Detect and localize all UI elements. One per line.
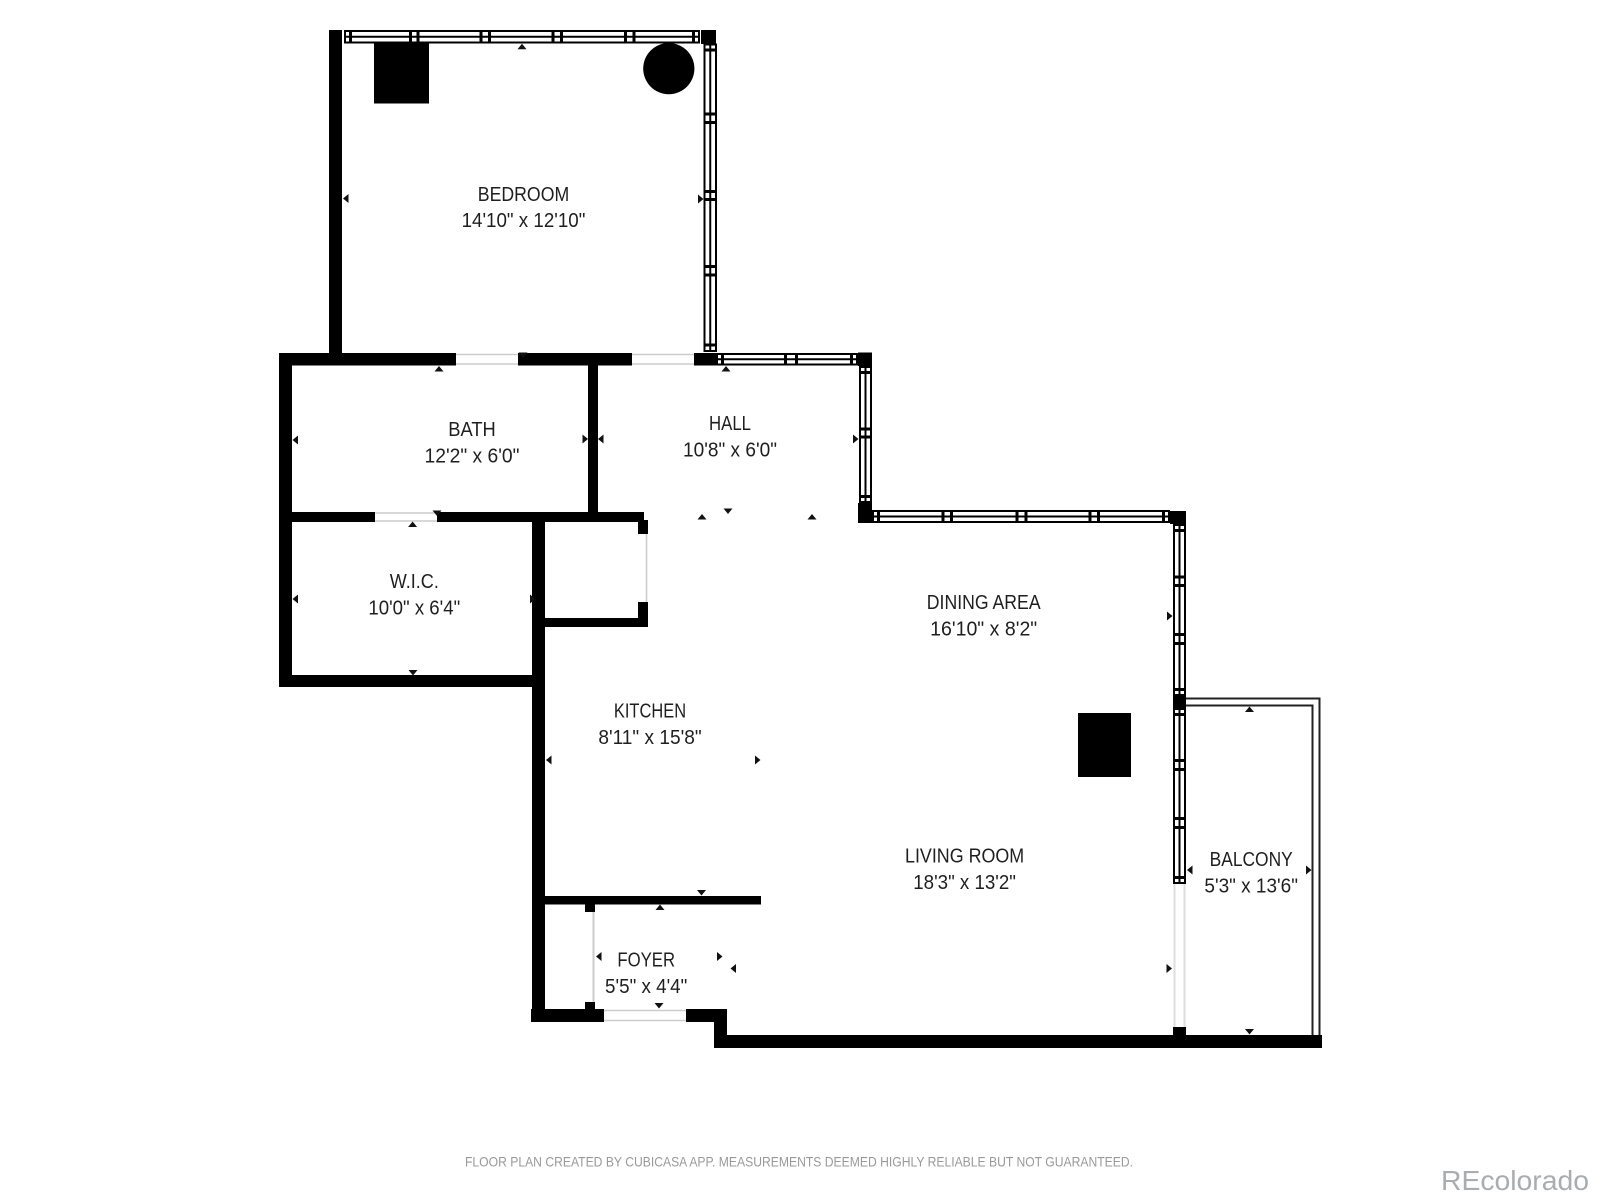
svg-text:HALL: HALL [709,412,751,435]
svg-text:5'5" x 4'4": 5'5" x 4'4" [605,975,687,998]
svg-text:10'0" x 6'4": 10'0" x 6'4" [368,597,460,620]
svg-text:W.I.C.: W.I.C. [390,570,439,593]
svg-text:FOYER: FOYER [617,949,675,972]
svg-text:BEDROOM: BEDROOM [478,183,569,206]
svg-text:REcolorado: REcolorado [1441,1165,1589,1196]
svg-text:LIVING ROOM: LIVING ROOM [905,845,1024,868]
svg-text:8'11" x 15'8": 8'11" x 15'8" [598,726,701,749]
svg-text:FLOOR PLAN CREATED BY CUBICASA: FLOOR PLAN CREATED BY CUBICASA APP. MEAS… [465,1154,1133,1170]
svg-text:16'10" x 8'2": 16'10" x 8'2" [930,618,1037,641]
svg-text:5'3" x 13'6": 5'3" x 13'6" [1204,875,1298,898]
svg-text:BATH: BATH [448,418,496,441]
svg-text:BALCONY: BALCONY [1210,848,1293,871]
svg-text:DINING AREA: DINING AREA [927,591,1041,614]
svg-text:10'8" x 6'0": 10'8" x 6'0" [683,439,777,462]
svg-text:KITCHEN: KITCHEN [614,700,686,723]
svg-text:12'2" x 6'0": 12'2" x 6'0" [425,445,520,468]
svg-text:14'10" x 12'10": 14'10" x 12'10" [462,209,586,232]
svg-text:18'3" x 13'2": 18'3" x 13'2" [913,871,1016,894]
